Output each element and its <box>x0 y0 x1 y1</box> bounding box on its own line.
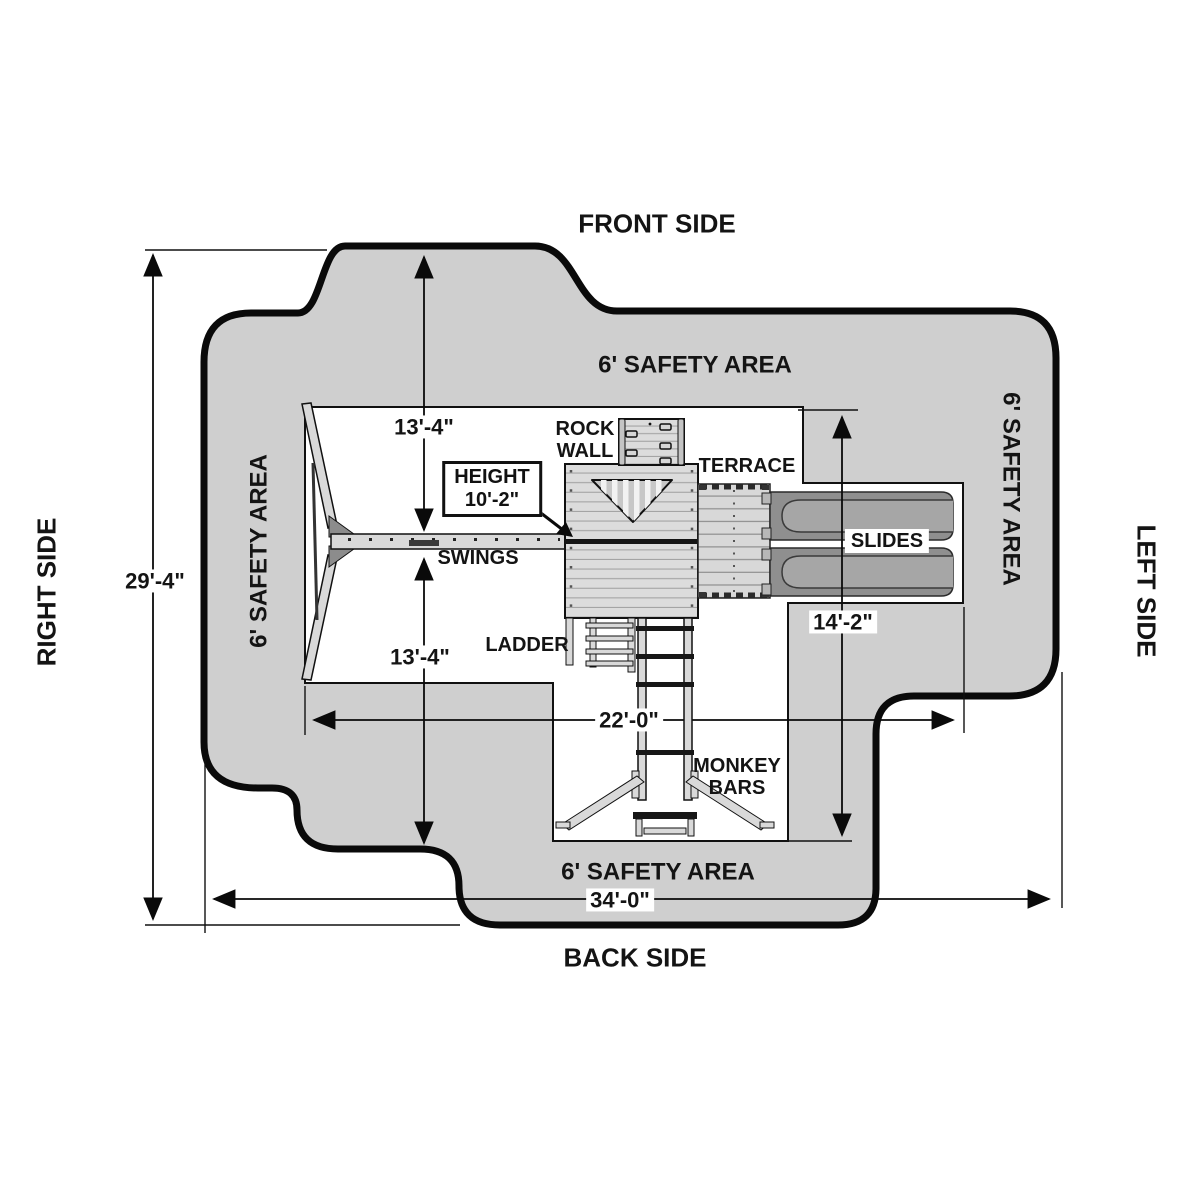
safety-area-label-right: 6' SAFETY AREA <box>998 392 1023 586</box>
monkey-bars-label-line1: MONKEY <box>693 755 781 777</box>
slide-1-channel <box>782 500 953 532</box>
dimension-29-4-label: 29'-4" <box>121 569 189 592</box>
monkey-bars-label-line2: BARS <box>693 777 781 799</box>
ladder-rung <box>586 636 633 641</box>
rock-wall-label-line2: WALL <box>556 440 615 462</box>
rock-wall-label: ROCK WALL <box>556 418 615 462</box>
dimension-34-0-label: 34'-0" <box>586 888 654 911</box>
ladder-rung <box>586 661 633 666</box>
safety-area-label-top: 6' SAFETY AREA <box>598 352 792 377</box>
height-title: HEIGHT <box>454 466 530 489</box>
playset-plan-diagram: FRONT SIDE BACK SIDE RIGHT SIDE LEFT SID… <box>0 0 1200 1200</box>
safety-area-label-bottom: 6' SAFETY AREA <box>561 859 755 884</box>
dimension-13-4-top-label: 13'-4" <box>390 415 458 438</box>
ladder-rung <box>586 623 633 628</box>
dimension-22-0-label: 22'-0" <box>595 708 663 731</box>
plan-svg <box>0 0 1200 1200</box>
height-callout-box: HEIGHT 10'-2" <box>442 461 542 517</box>
terrace-label: TERRACE <box>699 455 796 477</box>
slide-2-channel <box>782 556 953 588</box>
terrace-structure <box>698 484 770 598</box>
monkey-bars-label: MONKEY BARS <box>693 755 781 799</box>
height-value: 10'-2" <box>454 489 530 512</box>
tower-beam-line <box>565 539 698 544</box>
front-side-label: FRONT SIDE <box>578 210 735 237</box>
slides-label: SLIDES <box>845 529 929 553</box>
rock-wall-structure <box>619 419 684 465</box>
ladder-label: LADDER <box>485 634 568 656</box>
left-side-label: LEFT SIDE <box>1132 525 1159 658</box>
safety-area-label-left: 6' SAFETY AREA <box>246 454 271 648</box>
rock-wall-post-right <box>678 419 684 465</box>
right-side-label: RIGHT SIDE <box>33 518 60 667</box>
dimension-14-2-label: 14'-2" <box>809 610 877 633</box>
dimension-13-4-bottom-label: 13'-4" <box>386 645 454 668</box>
monkey-foot-bar <box>633 812 697 819</box>
ladder-rung <box>586 649 633 654</box>
swings-label: SWINGS <box>437 547 518 569</box>
tower <box>565 464 698 618</box>
back-side-label: BACK SIDE <box>563 944 706 971</box>
rock-wall-label-line1: ROCK <box>556 418 615 440</box>
rock-wall-post-left <box>619 419 625 465</box>
rock-wall-bolt <box>649 423 652 426</box>
swing-beam-hatch <box>409 540 439 546</box>
rock-wall-panel <box>619 419 684 465</box>
